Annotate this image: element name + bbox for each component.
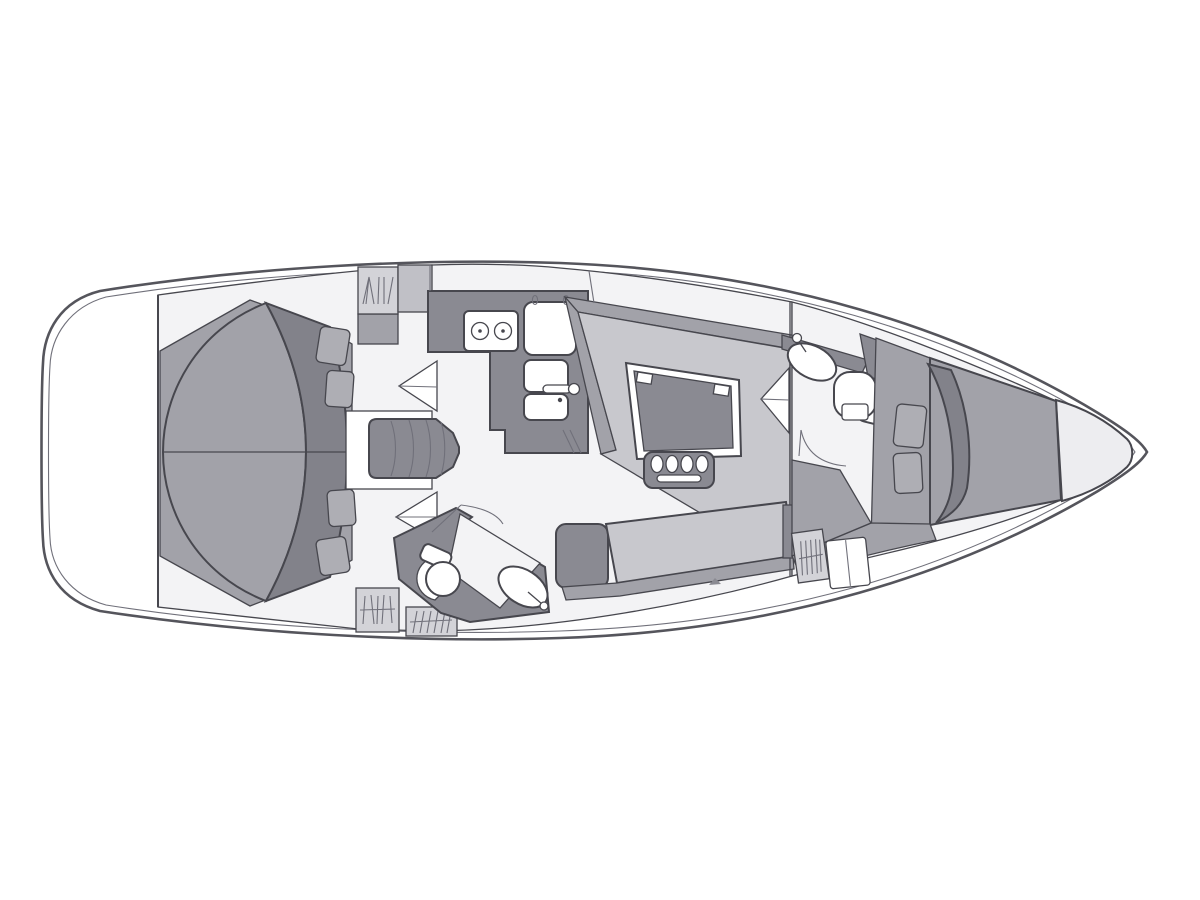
locker-plain [398, 265, 432, 312]
drain-icon [558, 398, 562, 402]
storage-locker-hatched-forward [792, 529, 830, 583]
faucet-knob-icon [569, 384, 580, 395]
pillow [315, 536, 350, 576]
bench-cushion-icon [651, 456, 663, 473]
yacht-floorplan [0, 0, 1200, 900]
faucet-knob-icon [793, 334, 802, 343]
bench-cushion-icon [666, 456, 678, 473]
burner-center [501, 329, 505, 333]
pillow [893, 404, 927, 449]
bench-cushion-icon [696, 456, 708, 473]
pillow [315, 326, 350, 366]
toilet-bowl [426, 562, 460, 596]
forward-panel [826, 537, 871, 589]
pillow [327, 489, 356, 527]
toilet-foot [842, 404, 868, 420]
pillow [893, 452, 923, 493]
bench-slot [657, 475, 701, 482]
bow-anchor-locker [1056, 400, 1132, 501]
faucet-knob-icon [540, 602, 548, 610]
bench-cushion-icon [681, 456, 693, 473]
burner-center [478, 329, 482, 333]
faucet-icon [543, 385, 571, 393]
floorplan-svg [0, 0, 1200, 900]
wardrobe [358, 314, 398, 344]
cupholder-icon [636, 372, 652, 384]
cupholder-icon [713, 384, 729, 396]
storage-locker-hatched-bottom-left [356, 588, 399, 632]
corner-seat [556, 524, 608, 588]
pillow [325, 370, 354, 408]
storage-locker-hatched-top [358, 267, 398, 314]
sink-basin [524, 394, 568, 420]
